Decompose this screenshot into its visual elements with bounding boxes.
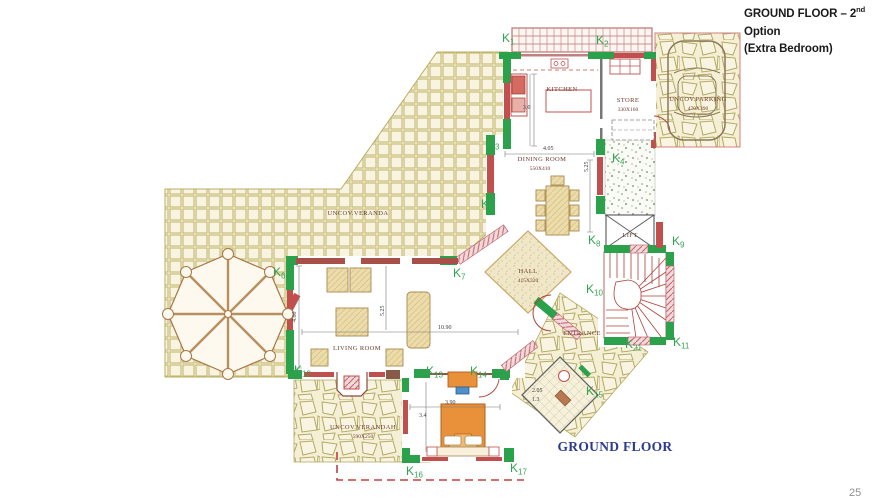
hall-label: HALL bbox=[519, 268, 538, 275]
sofa bbox=[407, 292, 430, 348]
store-size: 330X160 bbox=[618, 107, 639, 113]
page-number: 25 bbox=[849, 487, 861, 499]
sink-unit-icon bbox=[551, 59, 568, 68]
dim-bedroom-width: 3.90 bbox=[445, 400, 456, 406]
hall-size: 415X320 bbox=[518, 278, 539, 284]
floor-plan-page: GROUND FLOOR – 2nd Option (Extra Bedroom… bbox=[0, 0, 895, 502]
external-stair-band bbox=[512, 28, 652, 52]
dim-dining-width: 4.05 bbox=[543, 146, 554, 152]
parking-label: UNCOV.PARKING bbox=[669, 96, 726, 103]
dim-dining-depth: 5.25 bbox=[584, 162, 590, 173]
dim-bath-width: 1.3 bbox=[532, 397, 540, 403]
plan-footer-label: GROUND FLOOR bbox=[558, 439, 673, 454]
verandah-label: UNCOV.VERANDAH bbox=[330, 424, 396, 431]
headboard bbox=[437, 447, 489, 456]
nightstand bbox=[489, 447, 499, 456]
parking-size: 470X390 bbox=[688, 106, 709, 112]
floor-plan-drawing: LIFT bbox=[0, 0, 895, 502]
dim-bath-length: 2.05 bbox=[532, 388, 543, 394]
desk-chair bbox=[456, 387, 469, 394]
store-label: STORE bbox=[617, 97, 639, 104]
k-label-17: K17 bbox=[510, 461, 527, 477]
armchair bbox=[350, 268, 371, 292]
k-label-11: K11 bbox=[673, 335, 690, 351]
pillow bbox=[465, 436, 482, 445]
living-label: LIVING ROOM bbox=[333, 345, 381, 352]
cooker-icon bbox=[512, 76, 525, 94]
verandah-size: 590X250 bbox=[353, 434, 374, 440]
dim-living-width: 10.90 bbox=[438, 325, 452, 331]
k-label-16: K16 bbox=[406, 464, 423, 480]
dim-living-depth-left: 4.60 bbox=[292, 312, 298, 323]
toilet-icon bbox=[559, 371, 570, 382]
lift: LIFT bbox=[606, 215, 654, 248]
armchair bbox=[327, 268, 348, 292]
dining-label: DINING ROOM bbox=[518, 156, 567, 163]
side-table bbox=[311, 349, 328, 366]
entrance-label: ENTRANCE bbox=[563, 330, 601, 337]
nightstand bbox=[427, 447, 437, 456]
dim-kitchen-depth: 3.0 bbox=[523, 105, 531, 111]
dim-living-depth-mid: 5.25 bbox=[380, 306, 386, 317]
k-label-9: K9 bbox=[672, 234, 685, 250]
fireplace-icon bbox=[344, 376, 359, 389]
side-table bbox=[386, 349, 403, 366]
pillow bbox=[444, 436, 461, 445]
kitchen-island bbox=[546, 90, 591, 112]
lift-label: LIFT bbox=[622, 232, 637, 239]
veranda-label: UNCOV.VERANDA bbox=[328, 210, 389, 217]
dim-bedroom-depth: 3.4 bbox=[419, 413, 427, 419]
dining-size: 550X410 bbox=[530, 166, 551, 172]
kitchen-label: KITCHEN bbox=[546, 86, 577, 93]
